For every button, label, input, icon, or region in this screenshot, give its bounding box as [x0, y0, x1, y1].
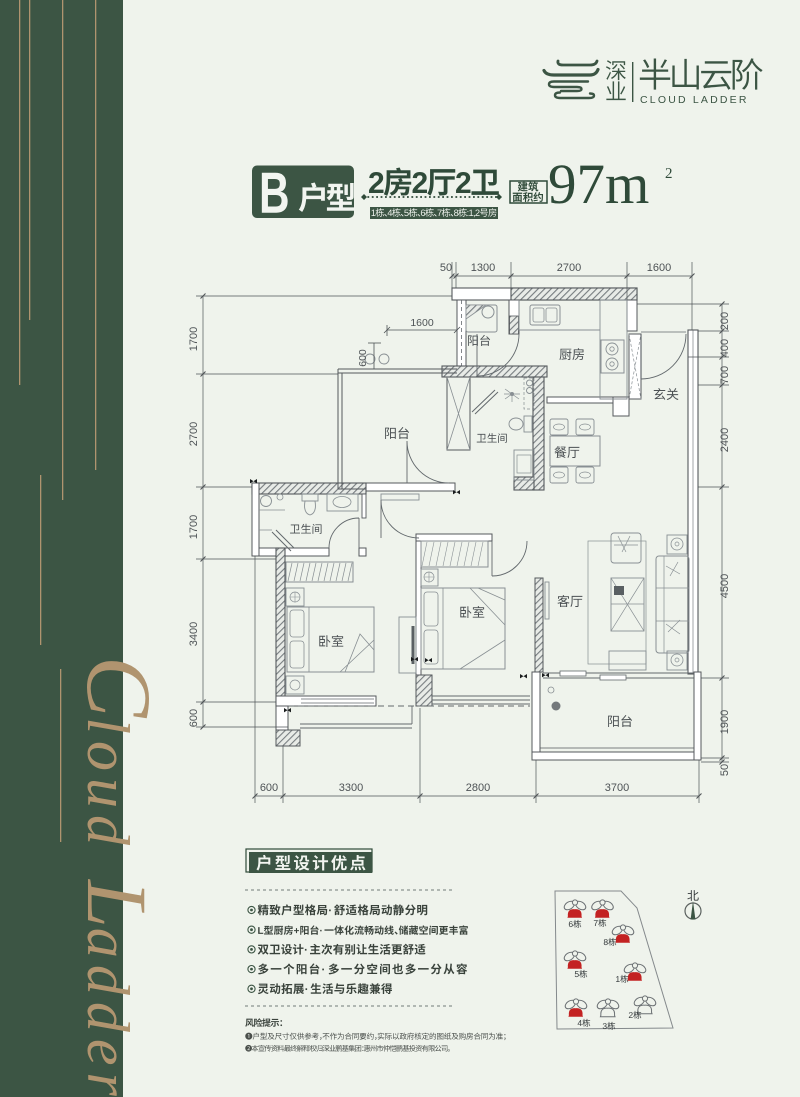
svg-text:1700: 1700: [188, 327, 200, 351]
svg-text:CLOUD LADDER: CLOUD LADDER: [640, 94, 749, 106]
svg-text:600: 600: [260, 782, 278, 794]
svg-text:1900: 1900: [719, 710, 731, 734]
svg-text:2700: 2700: [188, 422, 200, 446]
svg-text:4500: 4500: [719, 574, 731, 598]
svg-text:1300: 1300: [471, 262, 495, 274]
svg-text:3400: 3400: [188, 622, 200, 646]
svg-text:50: 50: [440, 262, 452, 274]
svg-text:400: 400: [719, 339, 731, 357]
svg-text:3300: 3300: [339, 782, 363, 794]
svg-text:1700: 1700: [188, 515, 200, 539]
svg-text:3700: 3700: [605, 782, 629, 794]
svg-text:50: 50: [719, 764, 731, 776]
svg-text:200: 200: [719, 312, 731, 330]
svg-text:600: 600: [188, 709, 200, 727]
svg-text:700: 700: [719, 366, 731, 384]
svg-text:1600: 1600: [410, 317, 434, 329]
svg-text:2800: 2800: [466, 782, 490, 794]
svg-text:2700: 2700: [557, 262, 581, 274]
svg-text:600: 600: [357, 349, 369, 367]
svg-text:2400: 2400: [719, 428, 731, 452]
svg-text:1600: 1600: [647, 262, 671, 274]
